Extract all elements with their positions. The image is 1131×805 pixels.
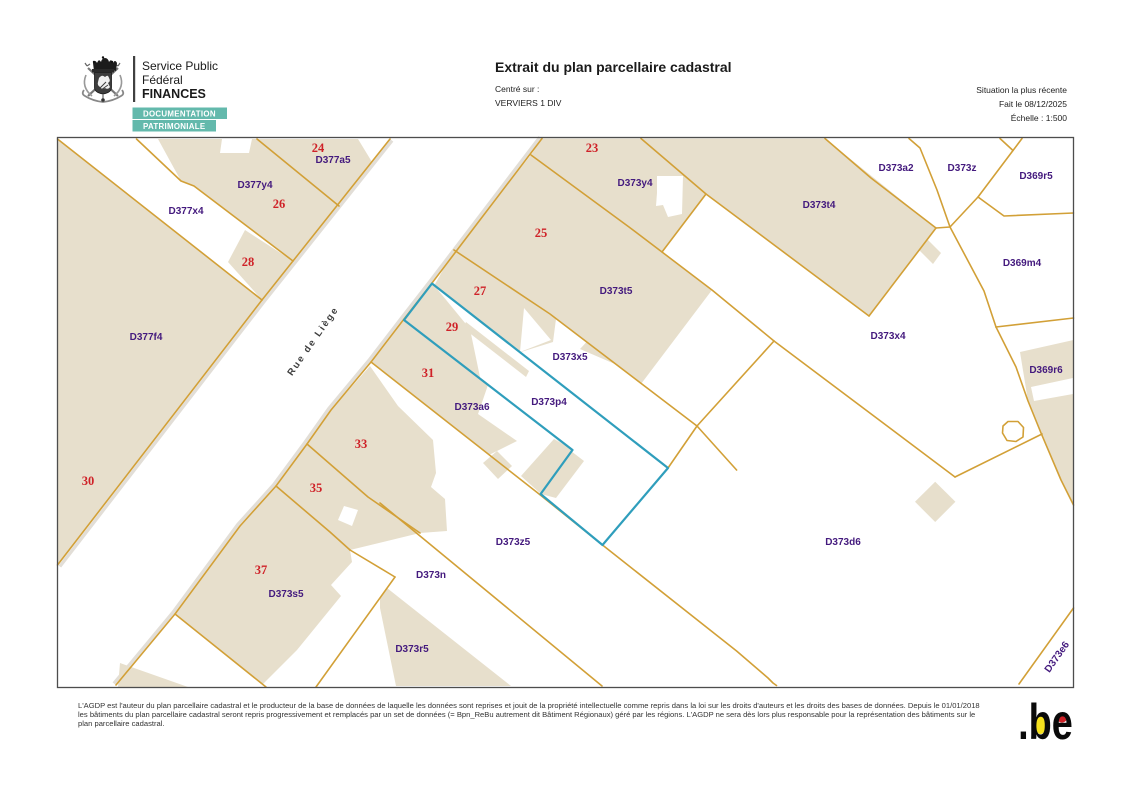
svg-text:D373t5: D373t5 [600,286,633,297]
svg-text:D369r6: D369r6 [1029,365,1063,376]
svg-text:.be: .be [1018,695,1073,750]
svg-text:Fédéral: Fédéral [142,73,183,87]
svg-text:D377y4: D377y4 [237,180,272,191]
svg-text:28: 28 [242,255,255,269]
svg-text:30: 30 [82,474,95,488]
svg-text:31: 31 [422,366,435,380]
svg-text:24: 24 [312,141,325,155]
svg-text:D373z: D373z [948,163,977,174]
svg-text:37: 37 [255,563,268,577]
svg-text:D377a5: D377a5 [315,155,350,166]
svg-text:D373p4: D373p4 [531,397,567,408]
svg-text:D373a6: D373a6 [454,402,489,413]
svg-text:23: 23 [586,141,599,155]
svg-text:D373z5: D373z5 [496,537,531,548]
svg-text:29: 29 [446,320,459,334]
svg-text:Échelle : 1:500: Échelle : 1:500 [1011,113,1068,123]
svg-text:33: 33 [355,437,368,451]
svg-text:25: 25 [535,226,548,240]
svg-text:D373d6: D373d6 [825,537,861,548]
svg-text:VERVIERS 1 DIV: VERVIERS 1 DIV [495,98,562,108]
svg-text:D373r5: D373r5 [395,644,429,655]
svg-text:D377x4: D377x4 [168,206,203,217]
svg-text:D369m4: D369m4 [1003,258,1042,269]
svg-text:PATRIMONIALE: PATRIMONIALE [143,122,205,131]
svg-text:Extrait du plan parcellaire ca: Extrait du plan parcellaire cadastral [495,59,732,75]
svg-text:D373n: D373n [416,570,446,581]
svg-text:les bâtiments du plan parcella: les bâtiments du plan parcellaire cadast… [78,710,975,719]
svg-text:Fait le 08/12/2025: Fait le 08/12/2025 [999,99,1067,109]
svg-text:26: 26 [273,197,286,211]
svg-text:D373a2: D373a2 [878,163,913,174]
svg-text:FINANCES: FINANCES [142,87,206,101]
svg-text:DOCUMENTATION: DOCUMENTATION [143,109,216,118]
svg-text:Service Public: Service Public [142,59,218,73]
svg-text:Situation la plus récente: Situation la plus récente [976,85,1067,95]
svg-text:D373s5: D373s5 [268,589,303,600]
svg-text:35: 35 [310,481,323,495]
svg-text:D373y4: D373y4 [617,178,652,189]
svg-text:Centré sur :: Centré sur : [495,84,539,94]
svg-text:L'AGDP est l'auteur du plan pa: L'AGDP est l'auteur du plan parcellaire … [78,701,980,710]
svg-text:plan parcellaire cadastral.: plan parcellaire cadastral. [78,719,165,728]
svg-text:D373t4: D373t4 [803,200,836,211]
svg-text:D377f4: D377f4 [130,332,163,343]
svg-text:D373x4: D373x4 [870,331,905,342]
svg-text:D369r5: D369r5 [1019,171,1053,182]
svg-text:D373x5: D373x5 [552,352,587,363]
svg-text:27: 27 [474,284,487,298]
